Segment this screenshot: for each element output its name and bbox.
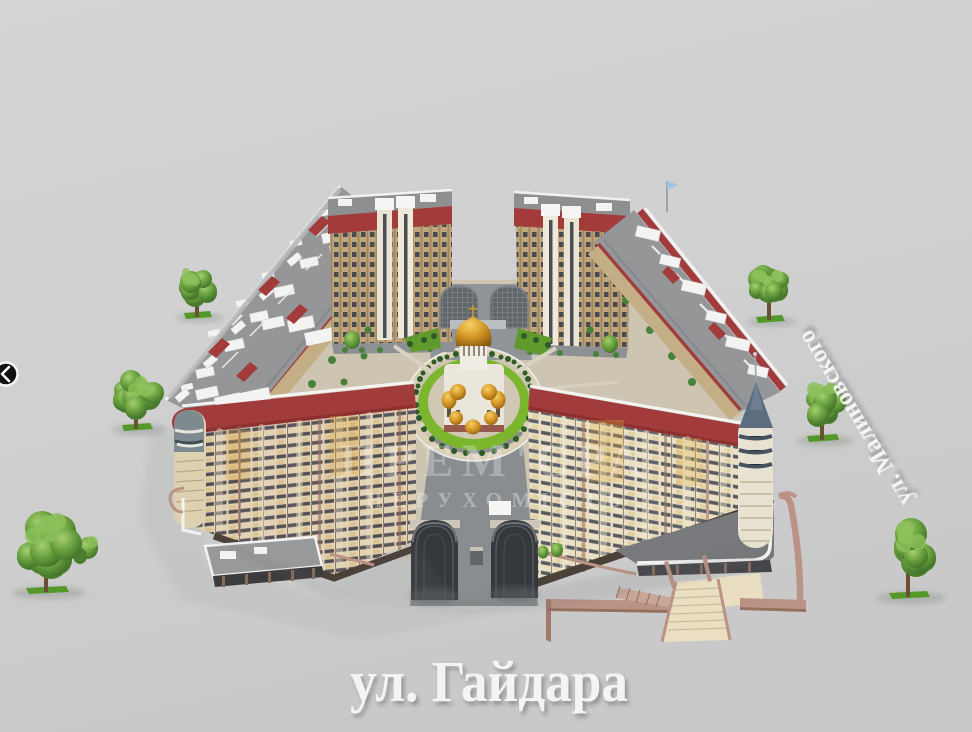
svg-text:НЕРУХОМІСТЬ: НЕРУХОМІСТЬ [366, 488, 630, 512]
svg-text:ул. Гайдара: ул. Гайдара [350, 649, 628, 714]
svg-text:ПРЕМ'ЄРА: ПРЕМ'ЄРА [340, 435, 651, 487]
